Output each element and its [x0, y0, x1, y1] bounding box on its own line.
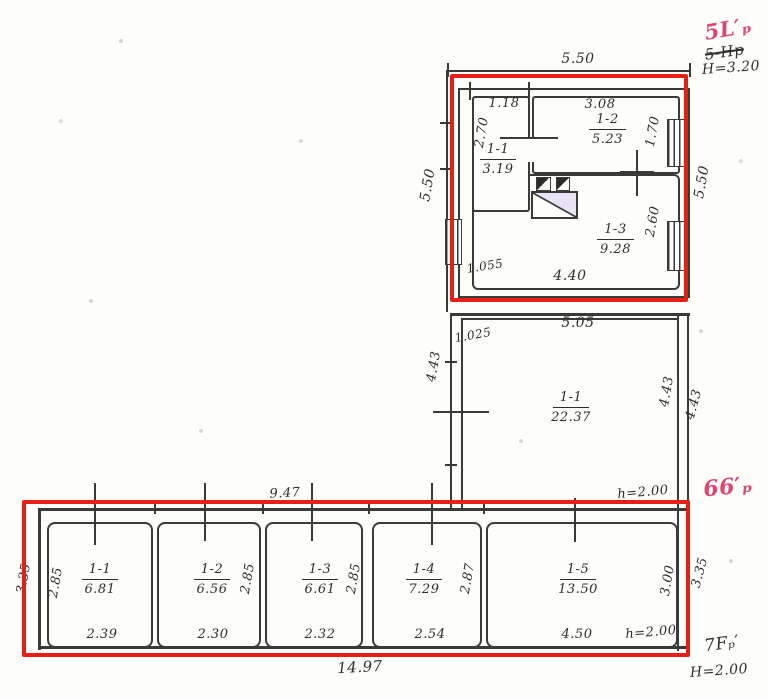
top-unit-width-dim: 5.50: [543, 52, 613, 66]
mid-right-inner-dim: 4.43: [657, 369, 677, 415]
dim-tick: [445, 464, 457, 466]
mid-height-note: h=2.00: [616, 484, 671, 502]
red-highlight-bottom-strip: [22, 500, 690, 657]
mid-left-dim: 4.43: [424, 344, 444, 390]
mid-left-wall-inner: [461, 318, 463, 511]
annotation-7fp: 7Fₚ′: [693, 632, 751, 657]
room-id: 1-1: [553, 391, 589, 408]
room-area: 22.37: [538, 408, 604, 424]
floor-plan-scan: 5.50 5.50 1.18 2.70 1-1 3.19 3.08 1-2 5.…: [0, 0, 768, 699]
dim-1-025: 1.025: [449, 325, 496, 345]
strip-right-outer-dim: 3.35: [688, 548, 713, 598]
annotation-h200: H=2.00: [688, 662, 751, 680]
dim-tick: [445, 361, 457, 363]
dim-line: [433, 411, 489, 413]
annotation-h320: H=3.20: [700, 59, 763, 77]
mid-bottom-dim: 9.47: [262, 486, 309, 501]
scan-speckles: [0, 0, 2, 2]
red-highlight-top-unit: [450, 74, 688, 302]
top-unit-left-dim: 5.50: [417, 160, 439, 210]
mid-right-outer-dim: 4.43: [682, 382, 706, 428]
mid-top-dim: 5.05: [550, 316, 606, 330]
strip-total-dim: 14.97: [328, 658, 393, 676]
top-dim-line: [447, 70, 691, 72]
annotation-66p: 66′ₚ: [697, 473, 759, 501]
annotation-5lp: 5L′ₚ: [697, 13, 760, 44]
top-unit-right-dim: 5.50: [691, 157, 713, 207]
dim-tick: [689, 63, 691, 77]
left-dim-line: [446, 70, 448, 312]
room-mid-1-1-label: 1-1 22.37: [538, 391, 604, 424]
